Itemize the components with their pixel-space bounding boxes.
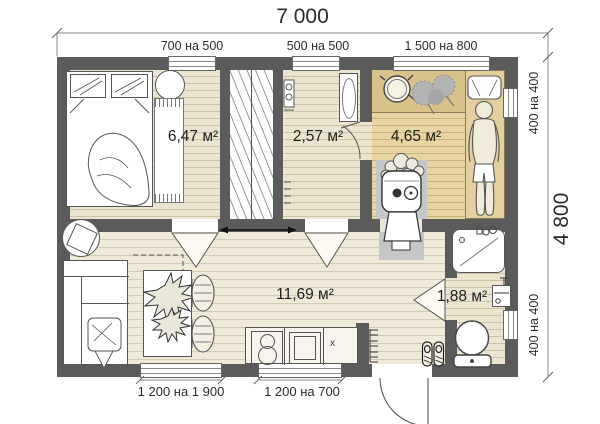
overall-width-label: 7 000 — [57, 5, 548, 29]
sliding-arrow — [219, 227, 297, 234]
dining-chairs — [192, 275, 214, 352]
entrance-door — [380, 378, 428, 424]
washroom-hooks — [284, 182, 291, 203]
floor-plan: x — [0, 0, 600, 424]
bottom-window-label-1: 1 200 на 1 900 — [131, 384, 231, 399]
toilet — [454, 321, 491, 367]
bedroom-area-label: 6,47 м² — [153, 128, 233, 146]
washroom-faucet — [284, 80, 294, 110]
bottom-window-label-2: 1 200 на 700 — [252, 384, 352, 399]
sauna-area-label: 4,65 м² — [376, 128, 456, 146]
washroom-area-label: 2,57 м² — [278, 128, 358, 146]
sauna-venik — [412, 75, 455, 114]
bed-sketch — [70, 78, 149, 205]
bedroom-door — [172, 233, 218, 267]
top-window-label-2: 500 на 500 — [276, 39, 360, 53]
shower-detail — [460, 227, 499, 267]
sofa-pillow — [88, 318, 121, 368]
right-window-label-1: 400 на 400 — [527, 66, 541, 140]
shoes — [423, 342, 444, 366]
bathroom-area-label: 1,88 м² — [420, 288, 504, 306]
loft-dashed-line — [133, 255, 183, 271]
top-window-label-3: 1 500 на 800 — [399, 39, 483, 53]
living-area-label: 11,69 м² — [260, 286, 350, 304]
washroom-door — [305, 233, 348, 267]
doormat-brush — [370, 329, 378, 362]
top-window-label-1: 700 на 500 — [150, 39, 234, 53]
person-figure — [468, 76, 501, 215]
overall-depth-label: 4 800 — [550, 179, 574, 259]
right-window-label-2: 400 на 400 — [527, 288, 541, 362]
sauna-stove — [381, 154, 424, 251]
plant — [144, 273, 195, 342]
